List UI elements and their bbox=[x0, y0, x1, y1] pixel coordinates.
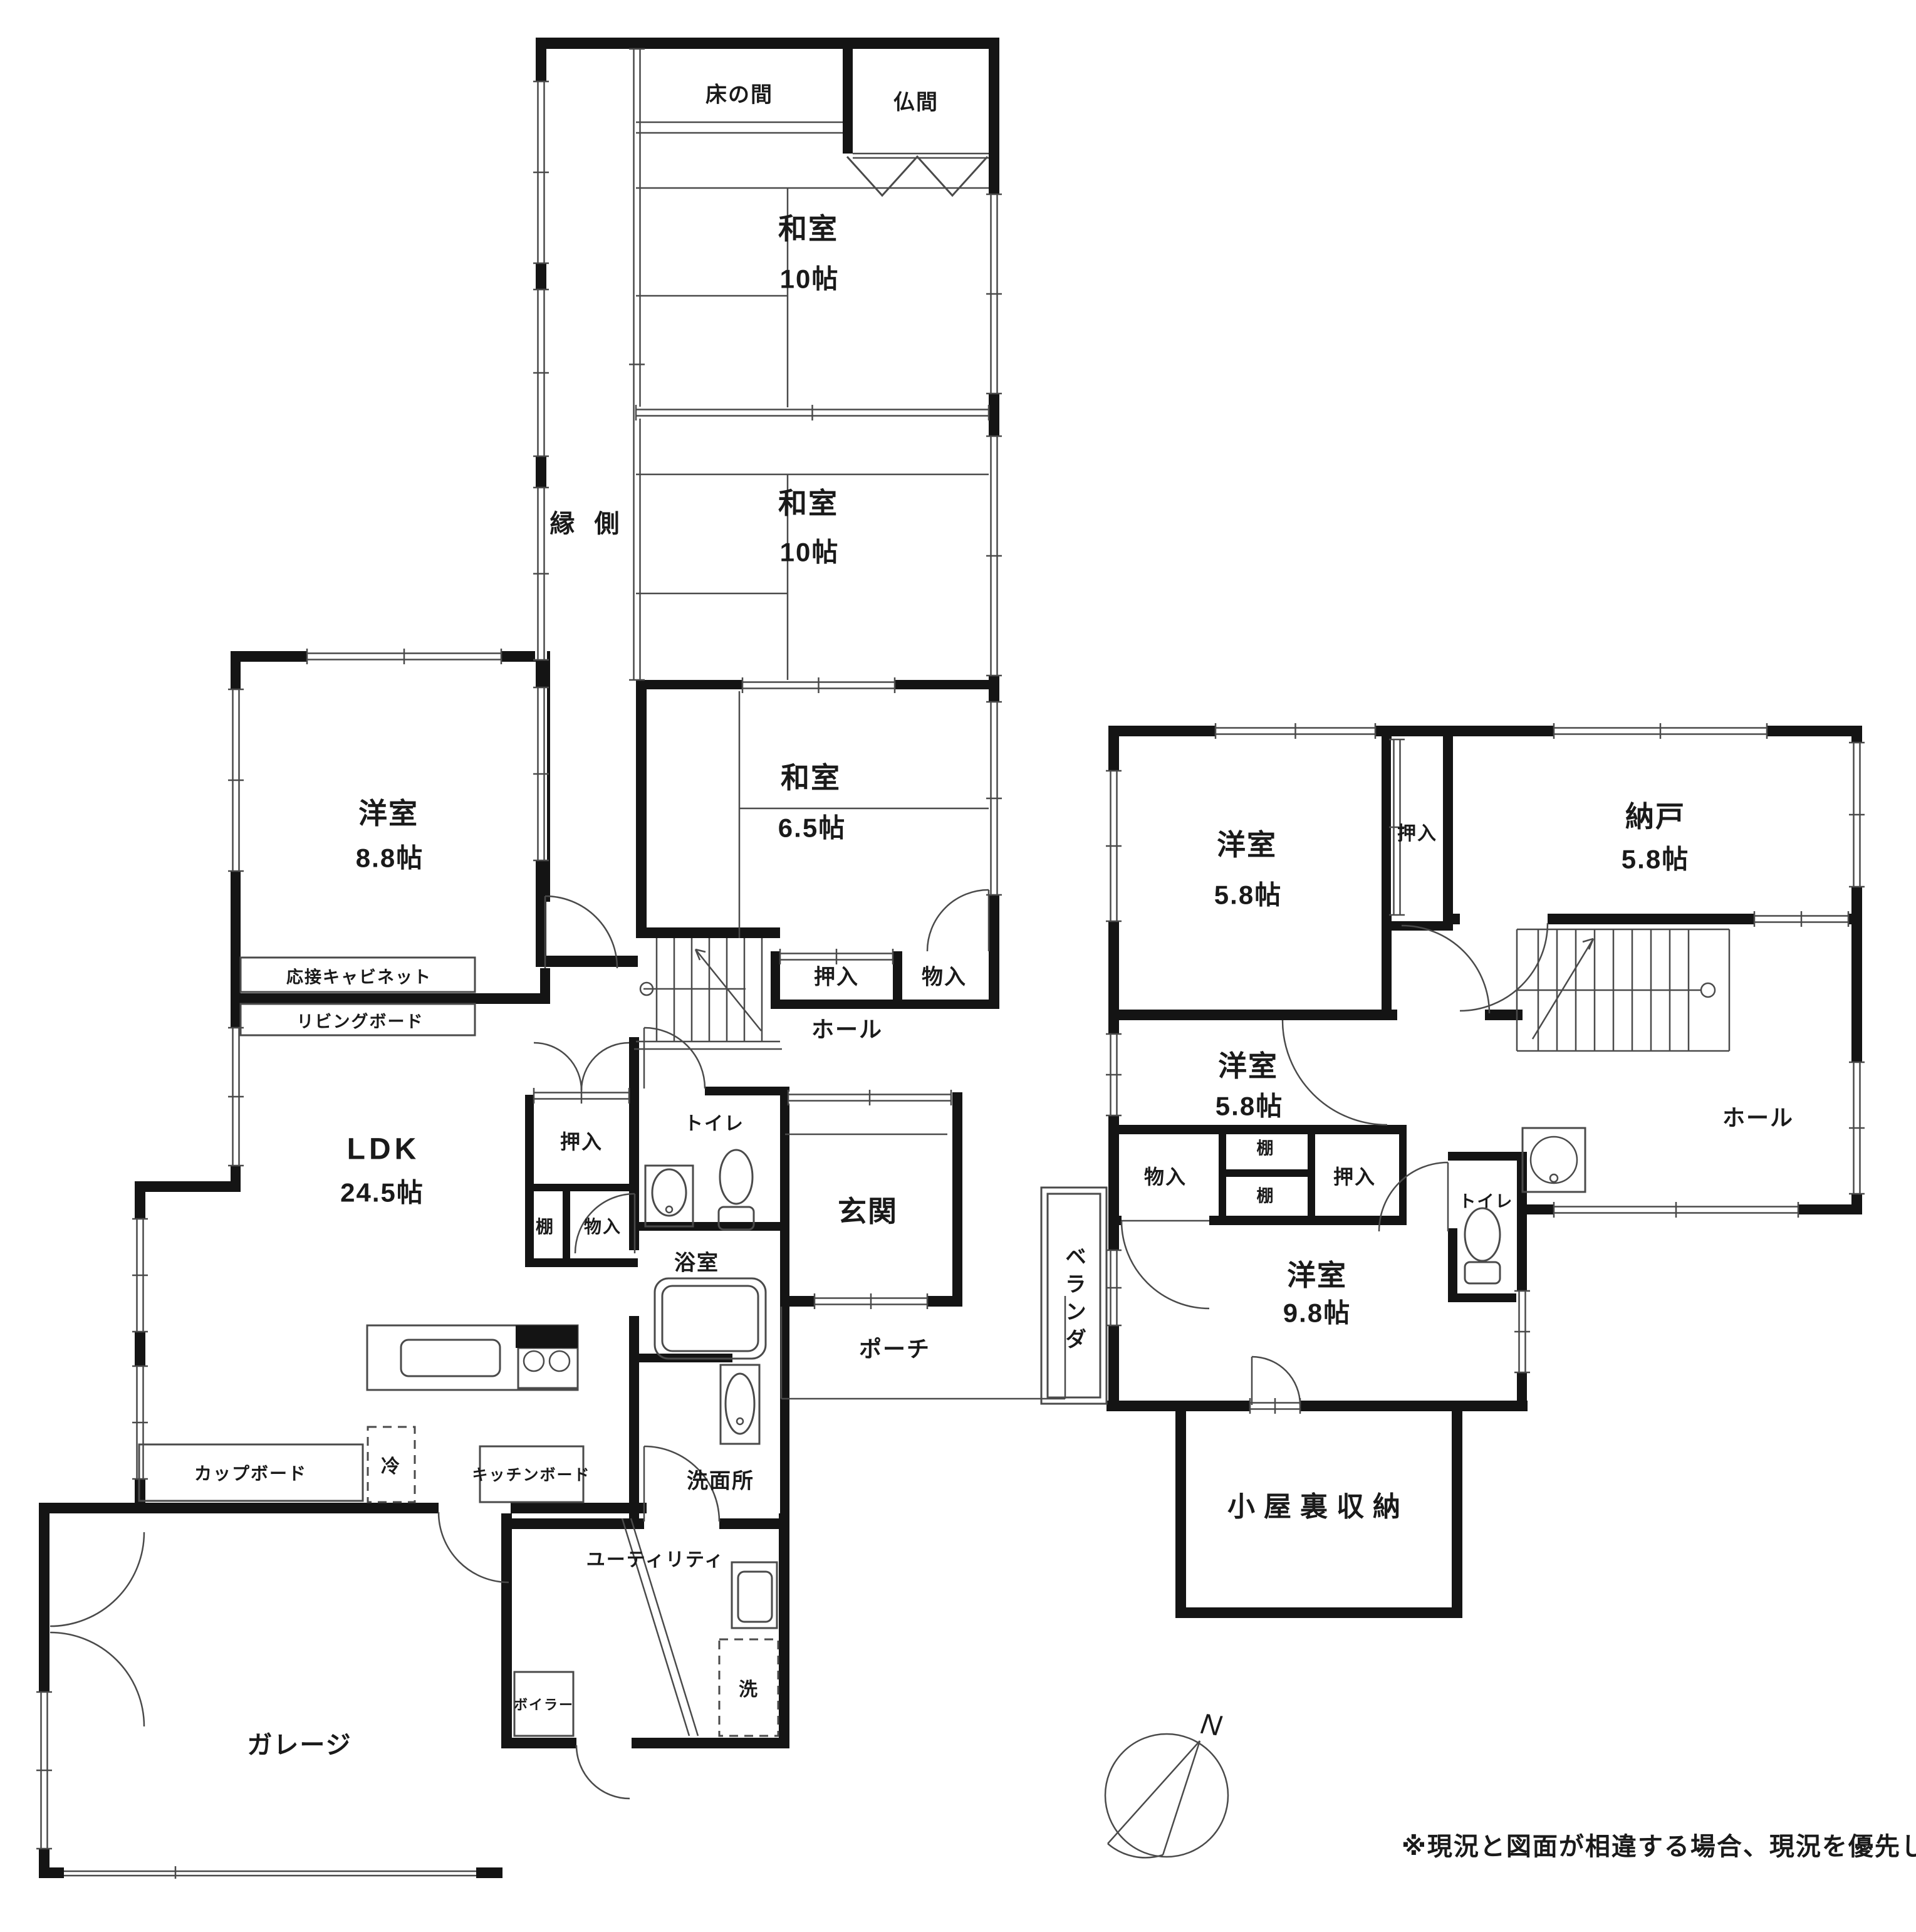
washbasin-icon-2f bbox=[1553, 1159, 1554, 1161]
furniture-label-cabinet: 応接キャビネット bbox=[286, 964, 432, 988]
room-label-attic: 小屋裏収納 bbox=[1227, 1484, 1409, 1524]
room-size-washitsu65: 6.5帖 bbox=[778, 807, 846, 845]
room-label-washitsu10b: 和室 bbox=[778, 481, 838, 522]
room-label-utility: ユーティリティ bbox=[586, 1544, 724, 1572]
shelf-label-tana-upper: 棚 bbox=[1257, 1135, 1275, 1159]
room-label-ldk: LDK bbox=[347, 1132, 420, 1167]
furniture-label-livingboard: リビングボード bbox=[297, 1008, 424, 1033]
closet-label-oshiire-1f: 押入 bbox=[560, 1126, 603, 1155]
room-label-washitsu65: 和室 bbox=[781, 755, 841, 796]
room-label-tokonoma: 床の間 bbox=[705, 78, 773, 108]
room-size-ldk: 24.5帖 bbox=[340, 1172, 424, 1210]
closet-label-monoire-1f: 物入 bbox=[584, 1213, 622, 1238]
closet-label-monoire-2f: 物入 bbox=[1144, 1161, 1187, 1190]
room-label-washitsu10a: 和室 bbox=[778, 206, 838, 248]
compass-north-label: N bbox=[1199, 1706, 1225, 1743]
room-label-yoshitsu88: 洋室 bbox=[358, 791, 419, 832]
room-label-butsuma: 仏間 bbox=[893, 85, 939, 116]
compass-icon bbox=[1166, 1795, 1167, 1796]
room-size-yoshitsu88: 8.8帖 bbox=[356, 837, 424, 875]
room-label-hall-2f: ホール bbox=[1722, 1100, 1794, 1132]
closet-label-oshiire-2f-top: 押入 bbox=[1397, 818, 1437, 845]
room-label-toilet-2f: トイレ bbox=[1459, 1188, 1514, 1213]
closet-label-monoire-band: 物入 bbox=[922, 960, 967, 991]
furniture-label-cupboard: カップボード bbox=[194, 1460, 307, 1485]
appliance-label-refrigerator: 冷 bbox=[381, 1451, 401, 1478]
room-size-nando: 5.8帖 bbox=[1622, 838, 1689, 877]
furniture-label-kitchenboard: キッチンボード bbox=[472, 1463, 590, 1485]
room-label-yoshitsu58-mid: 洋室 bbox=[1218, 1043, 1278, 1085]
room-label-bath: 浴室 bbox=[674, 1246, 719, 1277]
kitchen-sink-icon bbox=[450, 1357, 451, 1359]
room-label-toilet-1f: トイレ bbox=[684, 1108, 744, 1136]
appliance-label-boiler: ボイラー bbox=[514, 1694, 574, 1714]
shelf-label-tana-lower: 棚 bbox=[1257, 1183, 1275, 1207]
room-label-yoshitsu98: 洋室 bbox=[1287, 1253, 1347, 1294]
room-label-porch: ポーチ bbox=[859, 1331, 930, 1364]
closet-label-oshiire-band: 押入 bbox=[814, 960, 859, 991]
room-label-nando: 納戸 bbox=[1625, 794, 1685, 835]
shelf-label-tana-1f: 棚 bbox=[536, 1213, 554, 1238]
room-label-yoshitsu58-top: 洋室 bbox=[1217, 822, 1277, 864]
room-label-engawa: 縁 側 bbox=[549, 503, 625, 540]
appliance-label-laundry: 洗 bbox=[739, 1674, 759, 1701]
stove-icon bbox=[546, 1356, 547, 1357]
room-size-yoshitsu58-mid: 5.8帖 bbox=[1216, 1085, 1283, 1124]
room-label-genkan: 玄関 bbox=[838, 1189, 898, 1230]
room-size-washitsu10a: 10帖 bbox=[780, 258, 840, 296]
floorplan-page: 床の間 仏間 和室 10帖 縁 側 和室 10帖 和室 6.5帖 押入 物入 洋… bbox=[0, 0, 1916, 1932]
room-size-yoshitsu58-top: 5.8帖 bbox=[1214, 874, 1282, 912]
room-label-senmenjo: 洗面所 bbox=[687, 1464, 754, 1495]
room-label-garage: ガレージ bbox=[247, 1725, 351, 1761]
room-label-hall-1f: ホール bbox=[811, 1011, 883, 1044]
closet-label-oshiire-2f-mid: 押入 bbox=[1333, 1161, 1376, 1190]
room-size-yoshitsu98: 9.8帖 bbox=[1283, 1292, 1351, 1330]
bathtub-icon bbox=[709, 1318, 711, 1319]
room-label-veranda: ベランダ bbox=[1059, 1245, 1090, 1355]
room-size-washitsu10b: 10帖 bbox=[780, 531, 840, 570]
disclaimer-text: ※現況と図面が相違する場合、現況を優先します bbox=[1402, 1826, 1916, 1862]
